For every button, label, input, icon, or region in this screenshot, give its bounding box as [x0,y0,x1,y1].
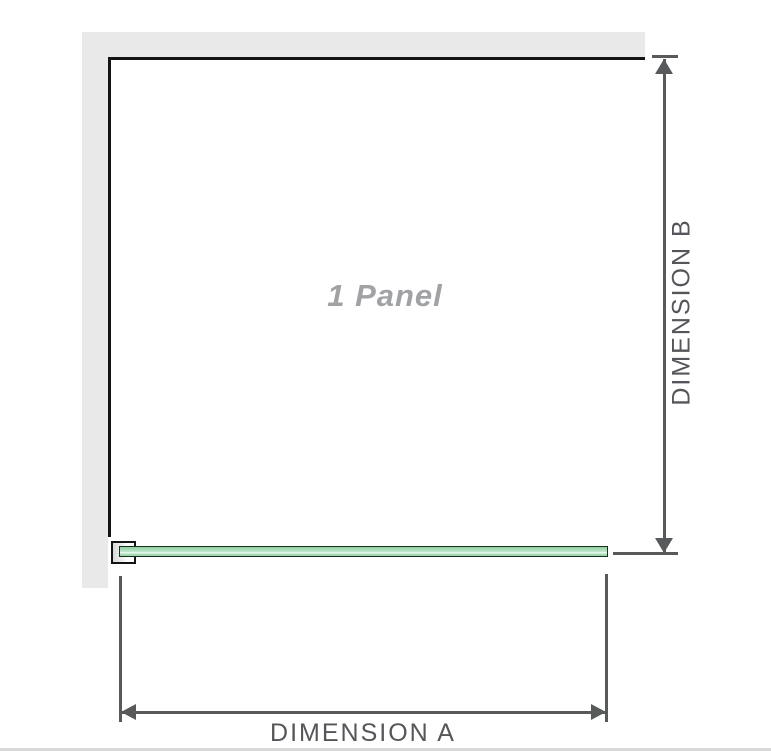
panel-count-watermark: 1 Panel [327,278,443,314]
bottom-divider-line [0,748,771,751]
arrow-left-icon [121,704,136,720]
wall-top [82,32,645,57]
arrow-right-icon [591,704,606,720]
dimension-b-line [663,59,666,553]
dimension-b-top-tick [652,55,678,58]
panel-top-edge-line [108,57,645,60]
dimension-diagram: 1 Panel DIMENSION B DIMENSION A [0,0,771,755]
dimension-a-left-extension-line [119,576,122,722]
dimension-b-label: DIMENSION B [668,218,697,405]
arrow-down-icon [655,538,673,553]
dimension-a-right-extension-line [605,574,608,722]
glass-panel-bar [119,546,608,557]
wall-left [82,32,108,588]
dimension-a-line [122,711,606,714]
arrow-up-icon [655,59,673,74]
dimension-a-label: DIMENSION A [270,719,456,748]
panel-left-edge-line [108,57,111,537]
